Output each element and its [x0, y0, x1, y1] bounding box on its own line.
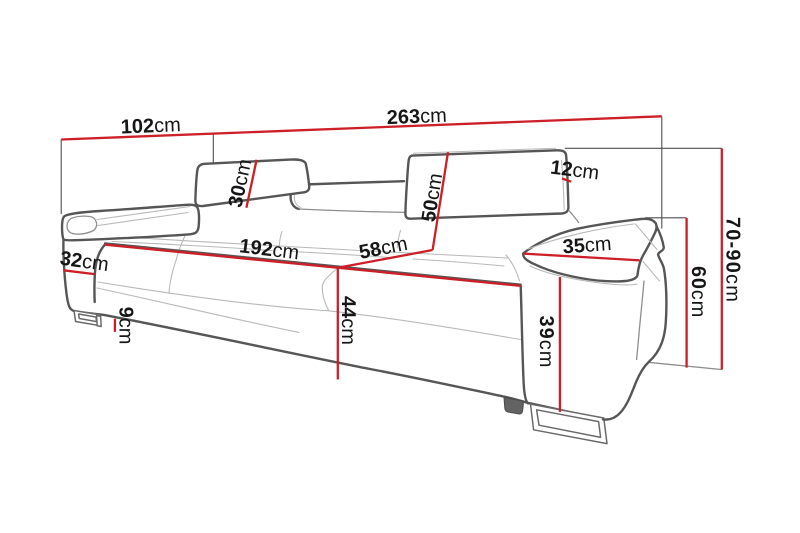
svg-text:102cm: 102cm — [120, 114, 181, 138]
svg-text:44cm: 44cm — [337, 296, 359, 345]
svg-text:9cm: 9cm — [115, 307, 137, 345]
svg-text:263cm: 263cm — [386, 105, 447, 129]
svg-text:35cm: 35cm — [562, 233, 612, 258]
svg-text:39cm: 39cm — [535, 316, 557, 369]
svg-text:70-90cm: 70-90cm — [722, 217, 744, 303]
svg-text:60cm: 60cm — [687, 266, 709, 318]
